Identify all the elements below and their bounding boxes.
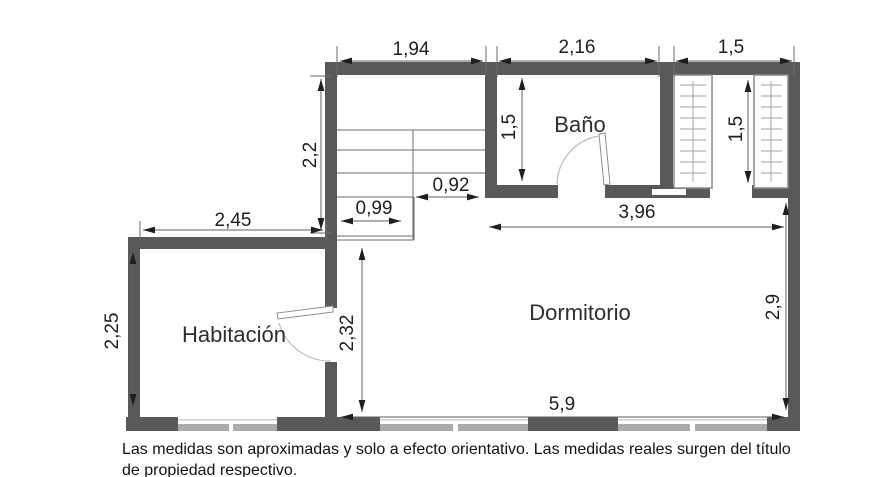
wall-habitacion-top xyxy=(128,237,337,249)
dim-dormitorio_right: 2,9 xyxy=(763,203,789,410)
wall-divider-bano-closet xyxy=(660,75,673,187)
dim-label-habitacion_width: 2,45 xyxy=(215,210,252,231)
door-swing-arc xyxy=(557,136,599,184)
disclaimer: Las medidas son aproximadas y solo a efe… xyxy=(122,441,791,477)
dim-closet_height: 1,5 xyxy=(726,80,751,183)
window-gap xyxy=(229,424,233,431)
dim-label-bano_height: 1,5 xyxy=(499,114,520,140)
window-band xyxy=(178,424,767,431)
dim-label-top_mid: 2,16 xyxy=(559,37,596,58)
dim-label-dormitorio_left: 2,32 xyxy=(337,315,358,352)
dim-dormitorio_left: 2,32 xyxy=(337,248,365,412)
wall-divider-stair-bano xyxy=(485,75,497,198)
door-leaf xyxy=(599,133,610,185)
wall-upper-left xyxy=(325,62,337,308)
wall-middle-lower xyxy=(325,362,337,420)
dim-label-dormitorio_right: 2,9 xyxy=(763,294,784,320)
dim-label-stair_right: 0,92 xyxy=(433,175,470,196)
wall-bottom-middle xyxy=(277,417,380,431)
wall-bottom-center xyxy=(528,417,618,431)
dim-label-top_right: 1,5 xyxy=(718,37,744,58)
wardrobe-right xyxy=(754,75,788,188)
room-label-dormitorio: Dormitorio xyxy=(529,300,630,325)
wall-slot xyxy=(652,189,686,195)
wall-bano-bottom-left xyxy=(485,185,558,198)
dim-stair_right: 0,92 xyxy=(416,175,479,200)
door-swing-arc xyxy=(279,323,331,361)
window-gap xyxy=(453,424,458,431)
room-label-habitacion: Habitación xyxy=(182,322,286,347)
dim-label-dormitorio_bottom: 5,9 xyxy=(549,394,575,415)
dim-label-closet_height: 1,5 xyxy=(726,116,747,142)
door-bano xyxy=(557,133,610,185)
room-label-bano: Baño xyxy=(554,112,605,137)
window-outer-line xyxy=(140,419,790,421)
wardrobe-left xyxy=(674,75,712,188)
dim-stair_left: 0,99 xyxy=(341,198,401,224)
dim-label-habitacion_height: 2,25 xyxy=(102,313,123,350)
dim-label-top_left: 1,94 xyxy=(393,39,430,60)
floor-plan-svg: Baño Dormitorio Habitación 1,942,161,52,… xyxy=(0,0,874,477)
dim-label-stair_left: 0,99 xyxy=(356,198,393,219)
disclaimer-line-2: de propiedad respectivo. xyxy=(122,462,297,477)
wall-right xyxy=(788,62,800,431)
dim-label-dormitorio_top: 3,96 xyxy=(619,202,656,223)
wall-top xyxy=(325,62,800,75)
dim-label-left: 2,2 xyxy=(300,142,321,168)
dim-dormitorio_bottom: 5,9 xyxy=(341,394,784,420)
door-leaf xyxy=(277,306,333,319)
wall-bottom-corner-right xyxy=(767,417,800,431)
wall-bottom-corner-left xyxy=(126,417,178,431)
floor-plan-page: Baño Dormitorio Habitación 1,942,161,52,… xyxy=(0,0,874,477)
disclaimer-line-1: Las medidas son aproximadas y solo a efe… xyxy=(122,441,791,458)
dim-habitacion_width: 2,45 xyxy=(140,210,326,241)
bottom-windows xyxy=(126,417,800,431)
window-gap xyxy=(690,424,695,431)
dim-bano_height: 1,5 xyxy=(499,78,525,181)
dim-dormitorio_top: 3,96 xyxy=(489,202,784,230)
